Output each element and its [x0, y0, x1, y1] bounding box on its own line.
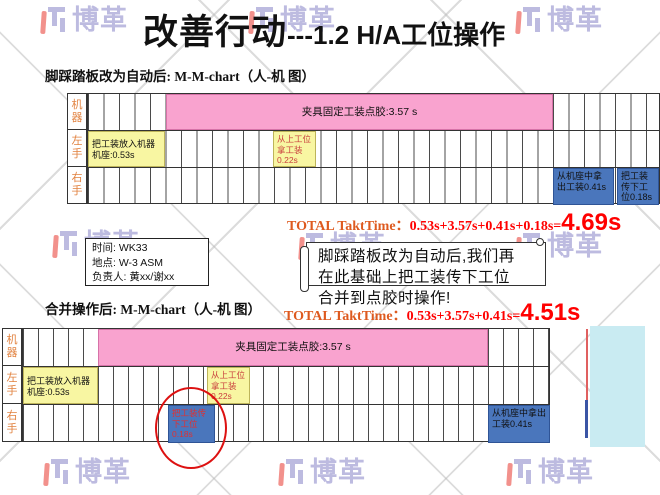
right-cyan-shape — [590, 326, 645, 447]
chart1-place-fixture-box: 把工装放入机器机座:0.53s — [88, 131, 165, 167]
section1-heading: 脚踩踏板改为自动后: M-M-chart（人-机 图） — [45, 65, 315, 85]
boge-logo-icon — [278, 456, 306, 488]
callout-line2: 在此基础上把工装传下工位 — [318, 267, 550, 288]
chart1-grid: 夹具固定工装点胶:3.57 s 把工装放入机器机座:0.53s 从上工位拿工装0… — [87, 93, 660, 204]
total-takt-time-1: TOTAL TaktTime： 0.53s+3.57s+0.41s+0.18s=… — [287, 209, 621, 237]
chart2-grid: 夹具固定工装点胶:3.57 s 把工装放入机器机座:0.53s 从上工位拿工装0… — [22, 328, 550, 442]
chart2-take-out-fixture-box: 从机座中拿出工装0.41s — [488, 405, 550, 443]
chart1-take-from-upstream-box: 从上工位拿工装0.22s — [273, 131, 316, 167]
boge-watermark: 博革 — [40, 4, 128, 36]
callout-line1: 脚踩踏板改为自动后,我们再 — [318, 246, 550, 267]
chart1-pass-down-fixture-box: 把工装传下工位0.18s — [617, 168, 659, 205]
total1-label: TOTAL TaktTime： — [287, 215, 410, 235]
chart2-label-left-hand: 左手 — [2, 365, 22, 404]
page-title-suffix: ---1.2 H/A工位操作 — [287, 15, 505, 52]
scroll-callout-top-curl — [536, 238, 544, 246]
boge-logo-icon — [43, 456, 71, 488]
chart1-row-labels: 机器 左手 右手 — [67, 93, 87, 204]
watermark-label: 博革 — [72, 4, 128, 36]
boge-watermark: 博革 — [43, 456, 131, 488]
right-shape-red-line — [586, 329, 588, 400]
boge-watermark: 博革 — [515, 4, 603, 36]
info-time: 时间: WK33 — [92, 241, 202, 256]
chart1-take-out-fixture-box: 从机座中拿出工装0.41s — [553, 168, 614, 205]
chart2-row-labels: 机器 左手 右手 — [2, 328, 22, 442]
chart2-label-machine: 机器 — [2, 328, 22, 366]
total1-value: 4.69s — [561, 209, 621, 237]
watermark-label: 博革 — [75, 456, 131, 488]
boge-logo-icon — [506, 456, 534, 488]
chart2-label-right-hand: 右手 — [2, 403, 22, 442]
info-owner: 负责人: 黄xx/谢xx — [92, 270, 202, 285]
watermark-label: 博革 — [538, 456, 594, 488]
scroll-callout-left-curl — [300, 246, 309, 292]
section2-heading: 合并操作后: M-M-chart（人-机 图） — [45, 298, 261, 318]
watermark-label: 博革 — [310, 456, 366, 488]
info-place: 地点: W-3 ASM — [92, 256, 202, 271]
chart1-label-left-hand: 左手 — [67, 129, 87, 167]
chart2-machine-bar: 夹具固定工装点胶:3.57 s — [98, 329, 488, 366]
chart2-rowline — [23, 404, 549, 405]
boge-watermark: 博革 — [278, 456, 366, 488]
chart1-machine-bar: 夹具固定工装点胶:3.57 s — [166, 94, 553, 130]
info-box: 时间: WK33 地点: W-3 ASM 负责人: 黄xx/谢xx — [85, 238, 209, 286]
page-title: 改善行动 ---1.2 H/A工位操作 — [143, 4, 505, 55]
chart1-label-machine: 机器 — [67, 93, 87, 130]
callout-line3: 合并到点胶时操作! — [318, 288, 550, 309]
watermark-label: 博革 — [547, 4, 603, 36]
boge-logo-icon — [40, 4, 68, 36]
total1-formula: 0.53s+3.57s+0.41s+0.18s= — [410, 219, 562, 235]
page-title-main: 改善行动 — [143, 4, 287, 55]
boge-watermark: 博革 — [506, 456, 594, 488]
boge-logo-icon — [52, 228, 80, 260]
boge-logo-icon — [515, 4, 543, 36]
scroll-callout-text: 脚踩踏板改为自动后,我们再 在此基础上把工装传下工位 合并到点胶时操作! — [318, 246, 550, 309]
chart2-place-fixture-box: 把工装放入机器机座:0.53s — [23, 367, 98, 404]
mm-chart-2: 机器 左手 右手 夹具固定工装点胶:3.57 s 把工装放入机器机座:0.53s… — [2, 328, 550, 442]
highlight-circle — [155, 387, 227, 469]
total2-formula: 0.53s+3.57s+0.41s= — [407, 309, 521, 325]
chart1-label-right-hand: 右手 — [67, 166, 87, 204]
chart2-rowline — [23, 366, 549, 367]
mm-chart-1: 机器 左手 右手 夹具固定工装点胶:3.57 s 把工装放入机器机座:0.53s… — [67, 93, 660, 204]
right-shape-blue-segment — [585, 400, 588, 438]
chart1-rowline — [88, 130, 659, 131]
